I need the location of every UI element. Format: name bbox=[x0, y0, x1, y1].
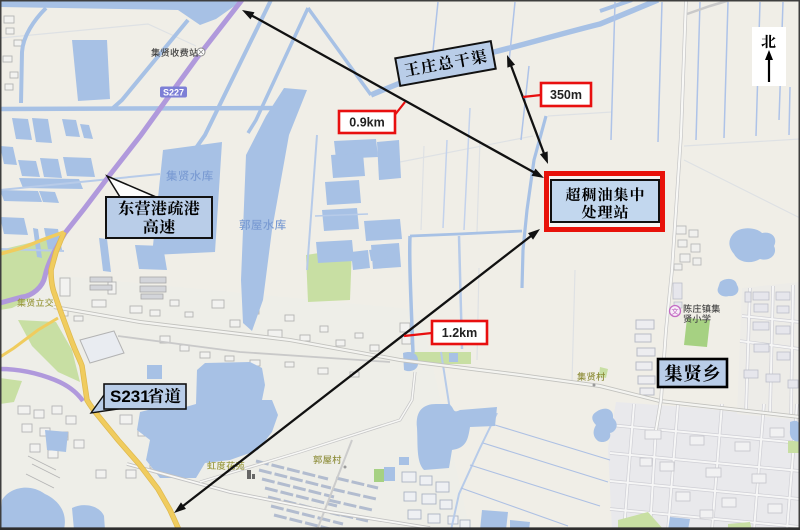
svg-text:350m: 350m bbox=[550, 88, 582, 102]
svg-text:0.9km: 0.9km bbox=[349, 116, 384, 130]
svg-text:1.2km: 1.2km bbox=[442, 326, 477, 340]
svg-text:S227: S227 bbox=[163, 88, 184, 98]
svg-text:S231: S231 bbox=[110, 387, 150, 406]
